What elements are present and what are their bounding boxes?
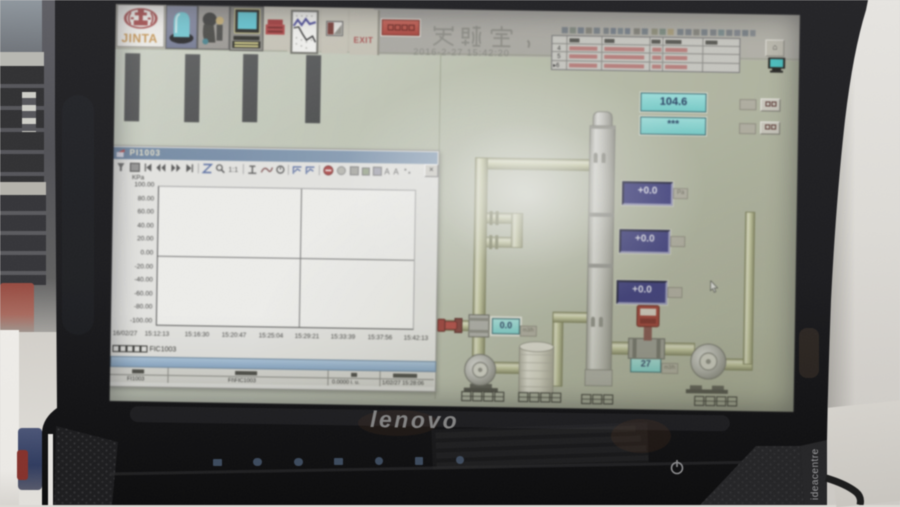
svg-text:ideacentre: ideacentre (810, 448, 821, 500)
svg-text:lenovo: lenovo (370, 406, 460, 434)
